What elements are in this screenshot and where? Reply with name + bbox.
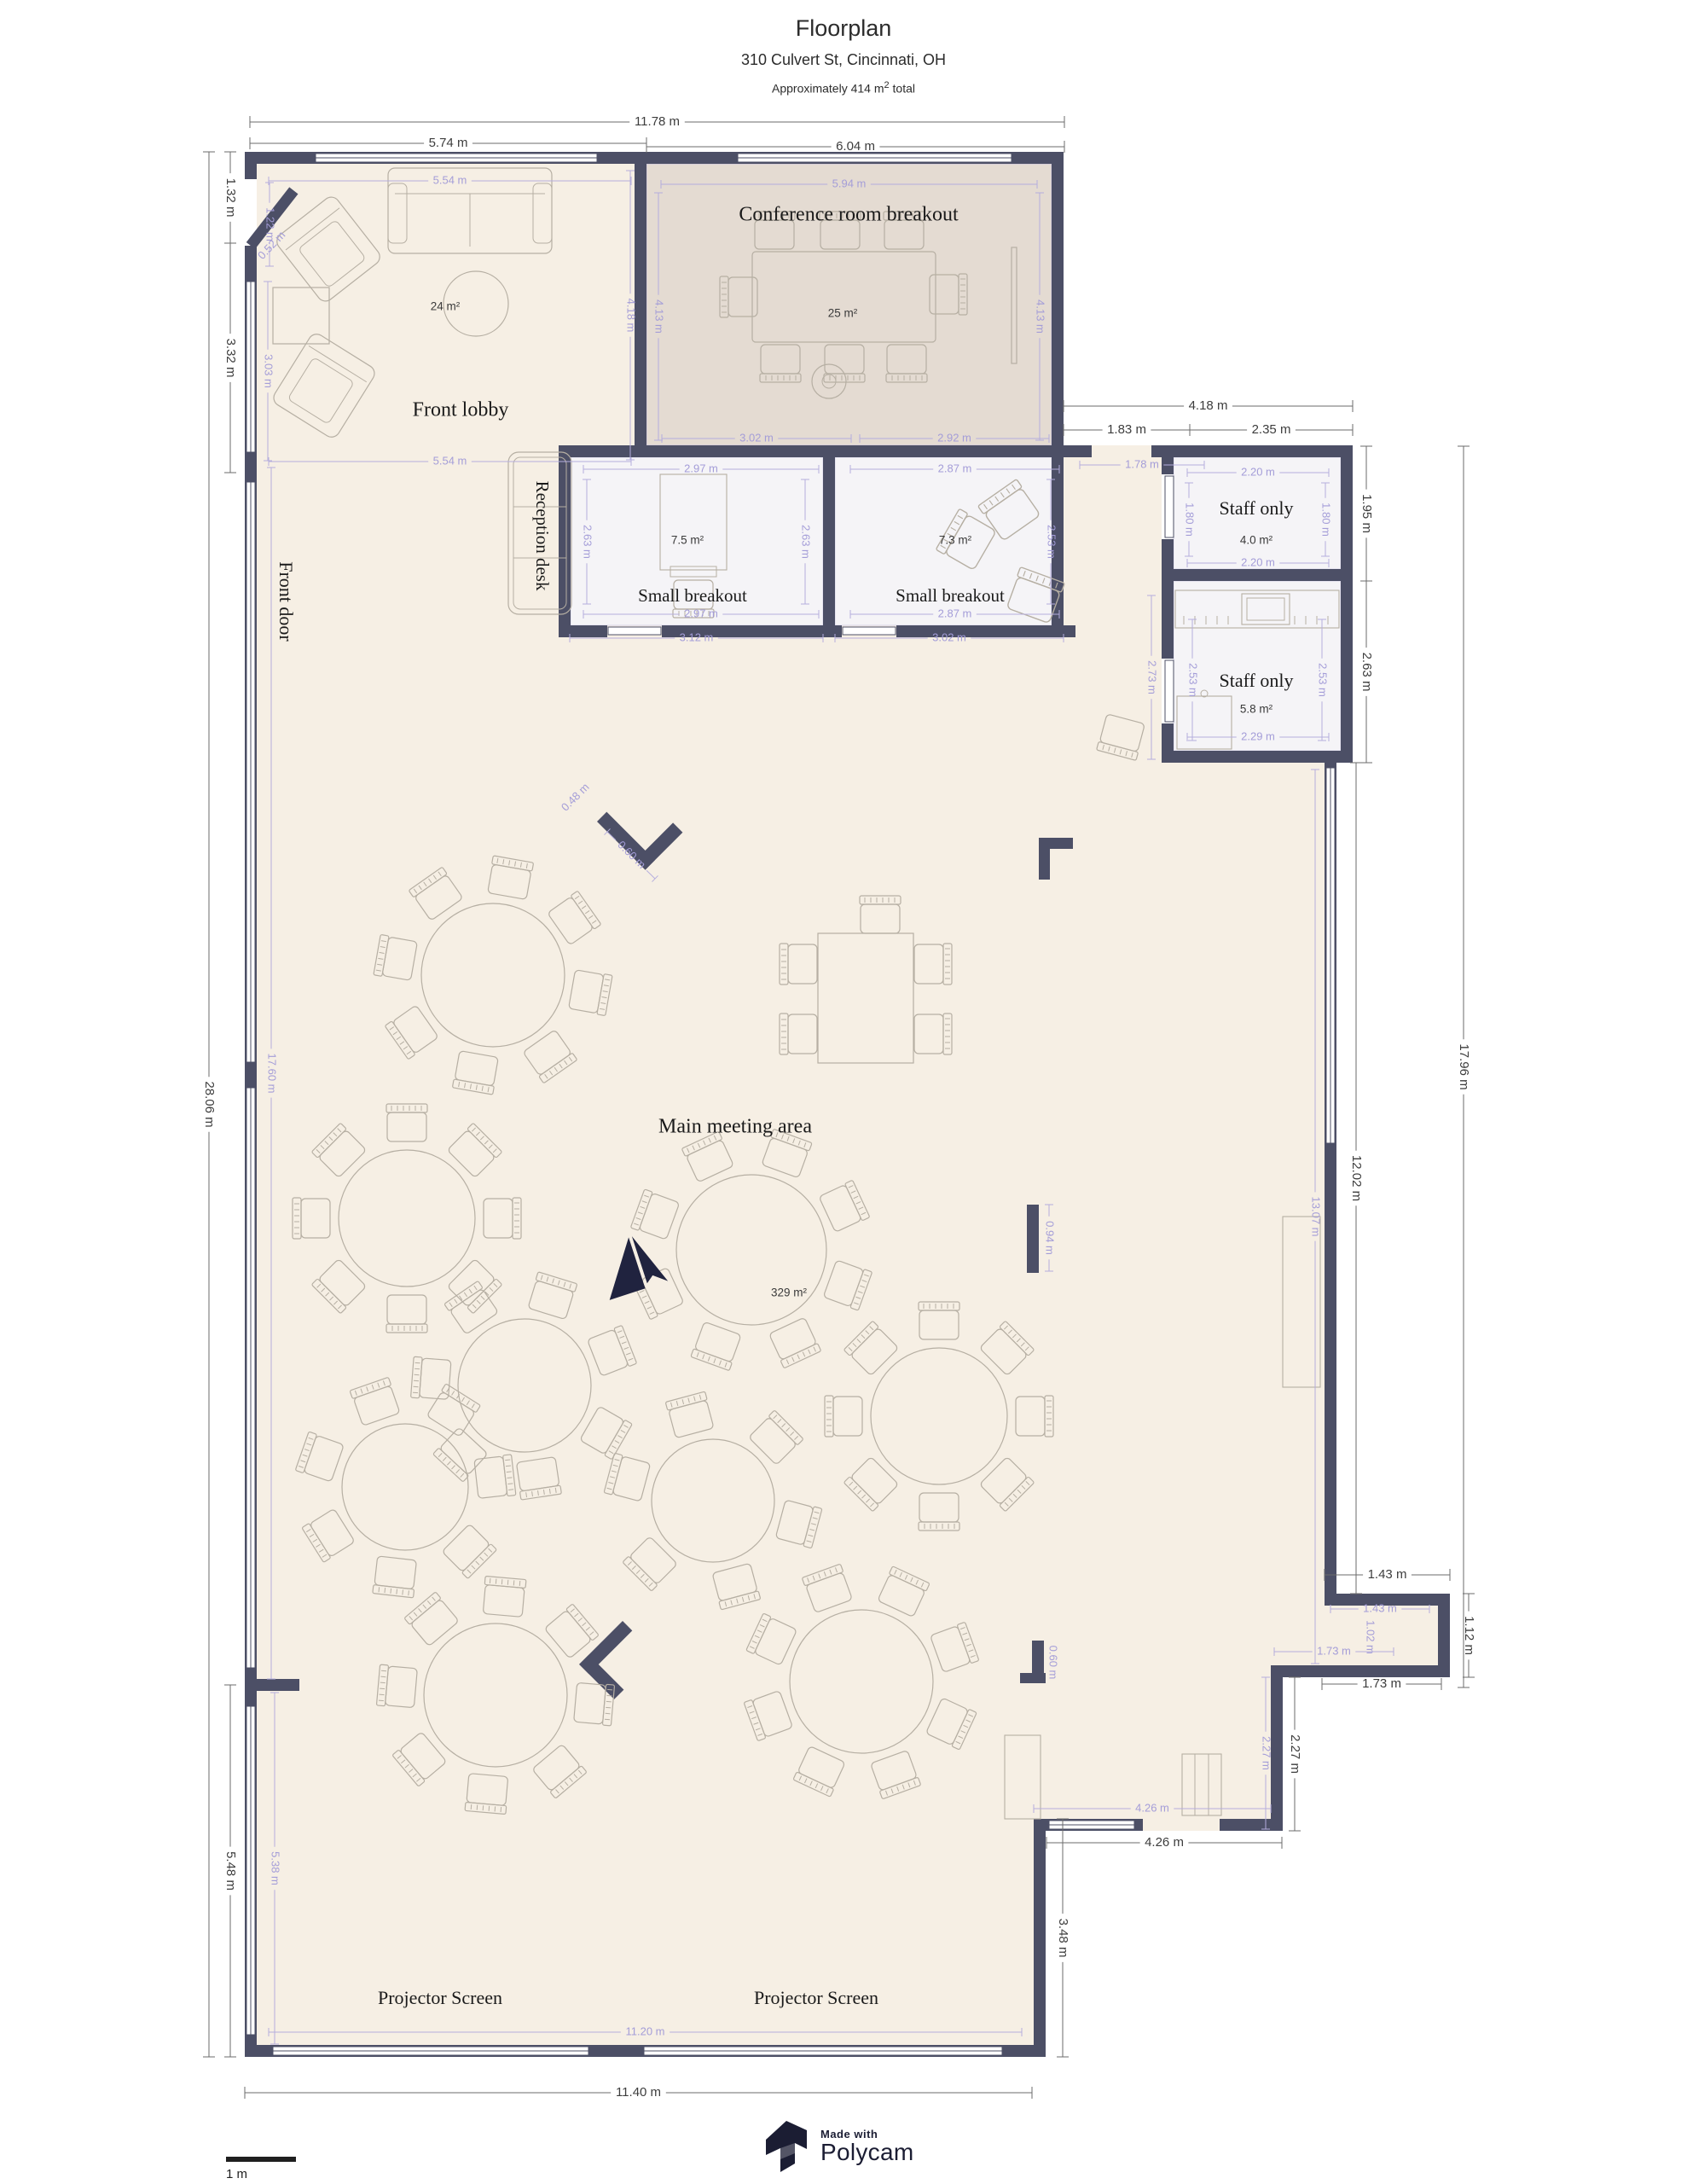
wall bbox=[1151, 445, 1353, 457]
dim-label: 4.13 m bbox=[1035, 299, 1047, 334]
dimension: 3.48 m bbox=[1056, 1819, 1070, 2057]
dim-label: 5.74 m bbox=[429, 136, 468, 150]
dim-label: 28.06 m bbox=[202, 1081, 217, 1127]
dimension: 11.78 m bbox=[250, 114, 1064, 129]
room-label-main-meeting-area: Main meeting area bbox=[658, 1116, 812, 1138]
dim-label: 2.63 m bbox=[800, 525, 813, 559]
dimension: 4.26 m bbox=[1046, 1835, 1282, 1850]
dimension: 28.06 m bbox=[202, 152, 217, 2057]
window bbox=[246, 1088, 255, 1668]
dim-label: 3.12 m bbox=[680, 630, 714, 643]
dim-label: 1.32 m bbox=[223, 178, 238, 218]
dimension: 5.48 m bbox=[223, 1685, 238, 2057]
dim-label: 2.53 m bbox=[1317, 663, 1330, 697]
wall bbox=[559, 445, 571, 637]
dim-label: 17.96 m bbox=[1457, 1043, 1471, 1089]
dim-label: 11.40 m bbox=[616, 2085, 661, 2100]
wall bbox=[1341, 445, 1353, 763]
dimension: 2.35 m bbox=[1190, 422, 1353, 437]
dim-label: 1.78 m bbox=[1125, 457, 1159, 470]
wall bbox=[257, 1679, 299, 1691]
dim-label: 2.20 m bbox=[1241, 465, 1275, 478]
dimension: 12.02 m bbox=[1349, 763, 1364, 1594]
dim-label: 2.53 m bbox=[1187, 663, 1200, 697]
wall bbox=[1271, 1665, 1450, 1677]
dim-label: 2.97 m bbox=[684, 462, 718, 474]
dim-label: 4.18 m bbox=[1189, 398, 1228, 413]
dim-label: 1.43 m bbox=[1363, 1601, 1397, 1614]
dim-label: 2.63 m bbox=[1359, 653, 1374, 692]
polycam-brand-label: Polycam bbox=[820, 2140, 913, 2164]
dim-label: 1.12 m bbox=[1462, 1616, 1476, 1655]
dimension: 1.73 m bbox=[1322, 1676, 1441, 1691]
dimension: 2.27 m bbox=[1288, 1677, 1302, 1831]
dim-label: 3.32 m bbox=[223, 339, 238, 378]
dim-label: 4.26 m bbox=[1145, 1835, 1184, 1850]
floor bbox=[257, 1819, 1034, 2045]
wall bbox=[1034, 1819, 1046, 2057]
dim-label: 4.13 m bbox=[653, 299, 666, 334]
dimension: 1.43 m bbox=[1325, 1567, 1450, 1582]
dim-label: 2.35 m bbox=[1252, 422, 1291, 437]
wall bbox=[559, 445, 1092, 457]
dimension: 11.40 m bbox=[245, 2085, 1032, 2100]
dim-label: 2.53 m bbox=[1046, 525, 1058, 559]
area-label: 5.8 m² bbox=[1240, 703, 1273, 716]
dimension: 4.18 m bbox=[1064, 398, 1353, 413]
wall bbox=[1039, 838, 1050, 880]
dim-label: 1.43 m bbox=[1368, 1567, 1407, 1582]
dim-label: 4.26 m bbox=[1135, 1801, 1169, 1814]
wall bbox=[1027, 1205, 1039, 1273]
dimension: 0.60 m bbox=[1047, 1646, 1060, 1680]
dimension: 6.04 m bbox=[646, 139, 1064, 154]
dim-label: 2.29 m bbox=[1241, 729, 1275, 742]
floorplan-page: Floorplan 310 Culvert St, Cincinnati, OH… bbox=[0, 0, 1687, 2184]
dim-label: 11.78 m bbox=[635, 114, 680, 129]
dim-label: 2.87 m bbox=[938, 462, 972, 474]
dimension: 1.95 m bbox=[1359, 446, 1374, 581]
dim-label: 2.97 m bbox=[684, 607, 718, 619]
dimension: 1.32 m bbox=[223, 152, 238, 243]
dim-label: 12.02 m bbox=[1349, 1155, 1364, 1201]
scale-bar-label: 1 m bbox=[226, 2167, 247, 2181]
dim-label: 2.87 m bbox=[938, 607, 972, 619]
dimension: 5.74 m bbox=[250, 136, 646, 150]
area-label: 7.3 m² bbox=[939, 534, 972, 547]
dimension: 17.96 m bbox=[1457, 446, 1471, 1687]
dim-label: 5.54 m bbox=[433, 454, 467, 467]
wall bbox=[823, 457, 835, 625]
window bbox=[644, 2047, 1002, 2055]
dimension: 1.83 m bbox=[1064, 422, 1190, 437]
room-label-projector-screen-1: Projector Screen bbox=[378, 1987, 502, 2008]
dim-label: 1.80 m bbox=[1320, 502, 1333, 537]
polycam-credit: Made with Polycam bbox=[764, 2119, 913, 2172]
dim-label: 11.20 m bbox=[625, 2024, 664, 2037]
area-label: 4.0 m² bbox=[1240, 534, 1273, 547]
dim-label: 0.60 m bbox=[1047, 1646, 1060, 1680]
door-leaf bbox=[1165, 476, 1174, 537]
dim-label: 6.04 m bbox=[836, 139, 875, 154]
floor bbox=[257, 763, 1325, 1594]
window bbox=[738, 154, 1012, 162]
dim-label: 4.18 m bbox=[625, 299, 638, 333]
wall bbox=[559, 625, 607, 637]
wall bbox=[1162, 457, 1174, 474]
dim-label: 1.80 m bbox=[1184, 502, 1197, 537]
polycam-logo-icon bbox=[764, 2119, 809, 2172]
dim-label: 2.20 m bbox=[1241, 555, 1275, 568]
window bbox=[1049, 1821, 1134, 1829]
dim-label: 0.94 m bbox=[1044, 1221, 1057, 1255]
floor bbox=[1092, 445, 1151, 457]
wall bbox=[1174, 569, 1341, 581]
dim-label: 5.48 m bbox=[223, 1851, 238, 1891]
door-leaf bbox=[1165, 660, 1174, 722]
room-label-staff-only-2: Staff only bbox=[1220, 670, 1294, 691]
dimension: 1.02 m bbox=[1365, 1620, 1377, 1654]
wall bbox=[1220, 1819, 1283, 1831]
dim-label: 2.92 m bbox=[937, 431, 971, 444]
room-label-front-door: Front door bbox=[275, 561, 297, 642]
dim-label: 3.02 m bbox=[739, 431, 774, 444]
wall bbox=[1438, 1594, 1450, 1677]
area-label: 24 m² bbox=[431, 300, 461, 313]
wall bbox=[245, 152, 257, 179]
dimension: 2.63 m bbox=[1359, 581, 1374, 763]
floor bbox=[1143, 1819, 1220, 1831]
dim-label: 3.48 m bbox=[1056, 1919, 1070, 1958]
window bbox=[246, 482, 255, 1062]
wall bbox=[1162, 539, 1174, 659]
dim-label: 3.02 m bbox=[932, 630, 966, 643]
wall bbox=[1162, 751, 1353, 763]
area-label: 25 m² bbox=[828, 307, 858, 320]
room-label-staff-only-1: Staff only bbox=[1220, 497, 1294, 519]
door-leaf bbox=[608, 627, 661, 635]
window bbox=[316, 154, 597, 162]
dim-label: 1.95 m bbox=[1359, 494, 1374, 533]
dim-label: 5.94 m bbox=[832, 177, 867, 189]
wall bbox=[1052, 164, 1064, 637]
room-label-reception-desk: Reception desk bbox=[532, 481, 553, 591]
area-label: 7.5 m² bbox=[671, 534, 704, 547]
door-leaf bbox=[843, 627, 896, 635]
window bbox=[246, 1706, 255, 2035]
room-label-front-lobby: Front lobby bbox=[413, 399, 509, 421]
wall bbox=[1020, 1673, 1046, 1683]
dim-label: 1.73 m bbox=[1317, 1644, 1351, 1657]
dim-label: 2.73 m bbox=[1146, 660, 1159, 694]
window bbox=[246, 282, 255, 452]
area-label: 329 m² bbox=[771, 1287, 808, 1299]
dim-label: 2.27 m bbox=[1288, 1734, 1302, 1774]
room-label-conference-room-breakout: Conference room breakout bbox=[739, 204, 959, 226]
window bbox=[273, 2047, 588, 2055]
dim-label: 1.83 m bbox=[1107, 422, 1146, 437]
wall bbox=[896, 625, 1075, 637]
dim-label: 5.54 m bbox=[433, 173, 467, 186]
dim-label: 2.63 m bbox=[582, 525, 594, 559]
floorplan-drawing: 11.78 m5.74 m6.04 m1.32 m3.32 m28.06 m4.… bbox=[0, 0, 1687, 2184]
room-label-small-breakout-1: Small breakout bbox=[638, 585, 747, 606]
floor bbox=[257, 1594, 1271, 1819]
dim-label: 1.73 m bbox=[1362, 1676, 1401, 1691]
room-label-small-breakout-2: Small breakout bbox=[896, 585, 1005, 606]
window bbox=[1326, 768, 1335, 1143]
dim-label: 5.38 m bbox=[270, 1851, 282, 1885]
dimension: 1.12 m bbox=[1462, 1594, 1476, 1677]
room-label-projector-screen-2: Projector Screen bbox=[754, 1987, 878, 2008]
dimension: 3.32 m bbox=[223, 243, 238, 473]
dim-label: 2.27 m bbox=[1261, 1736, 1273, 1770]
dim-label: 13.07 m bbox=[1310, 1197, 1323, 1237]
dim-label: 3.03 m bbox=[263, 354, 275, 388]
dim-label: 1.02 m bbox=[1365, 1620, 1377, 1654]
dim-label: 17.60 m bbox=[266, 1054, 279, 1094]
scale-bar bbox=[226, 2157, 296, 2162]
